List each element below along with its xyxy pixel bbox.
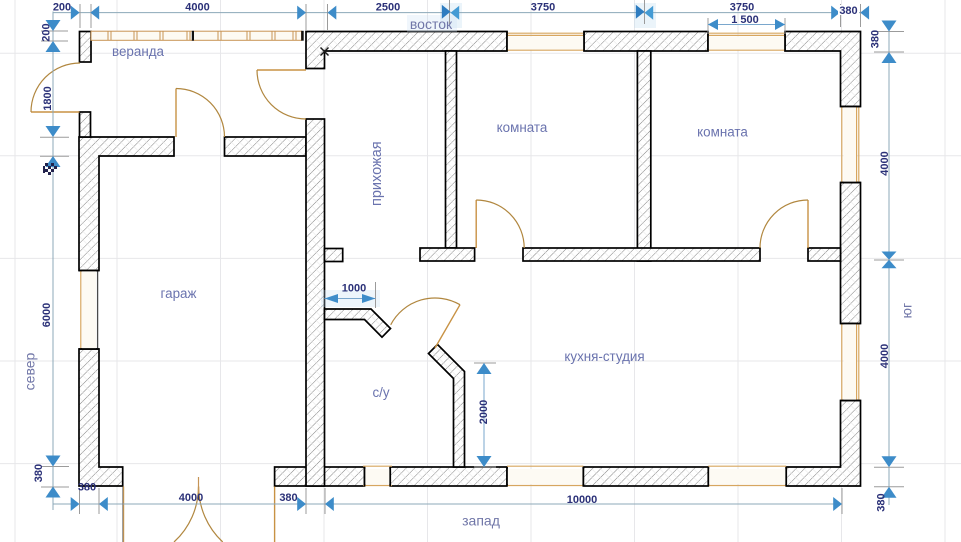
svg-text:4000: 4000 (179, 492, 203, 504)
svg-text:380: 380 (839, 5, 857, 17)
svg-text:север: север (22, 352, 38, 390)
svg-text:1000: 1000 (342, 283, 366, 295)
svg-text:комната: комната (697, 125, 748, 140)
svg-text:380: 380 (870, 30, 882, 48)
svg-text:3750: 3750 (531, 2, 555, 14)
svg-text:380: 380 (78, 482, 96, 494)
svg-text:380: 380 (876, 493, 888, 511)
svg-text:10000: 10000 (567, 494, 598, 506)
svg-text:380: 380 (279, 492, 297, 504)
svg-text:1 500: 1 500 (731, 14, 759, 26)
svg-text:комната: комната (497, 120, 548, 135)
svg-text:4000: 4000 (879, 151, 891, 175)
svg-text:3750: 3750 (730, 2, 754, 14)
svg-text:4000: 4000 (879, 344, 891, 368)
svg-text:2500: 2500 (376, 2, 400, 14)
svg-text:восток: восток (410, 16, 453, 32)
svg-text:веранда: веранда (112, 44, 165, 59)
svg-text:1800: 1800 (42, 86, 54, 110)
svg-text:6000: 6000 (41, 303, 53, 327)
svg-text:380: 380 (33, 464, 45, 482)
svg-text:200: 200 (41, 23, 53, 41)
svg-text:2000: 2000 (478, 400, 490, 424)
svg-text:200: 200 (53, 2, 71, 14)
svg-text:4000: 4000 (185, 2, 209, 14)
svg-text:с/у: с/у (372, 385, 389, 400)
svg-text:гараж: гараж (161, 286, 197, 301)
svg-text:запад: запад (462, 513, 500, 529)
svg-text:юг: юг (899, 303, 915, 319)
svg-text:прихожая: прихожая (369, 141, 385, 206)
svg-text:кухня-студия: кухня-студия (564, 349, 644, 364)
